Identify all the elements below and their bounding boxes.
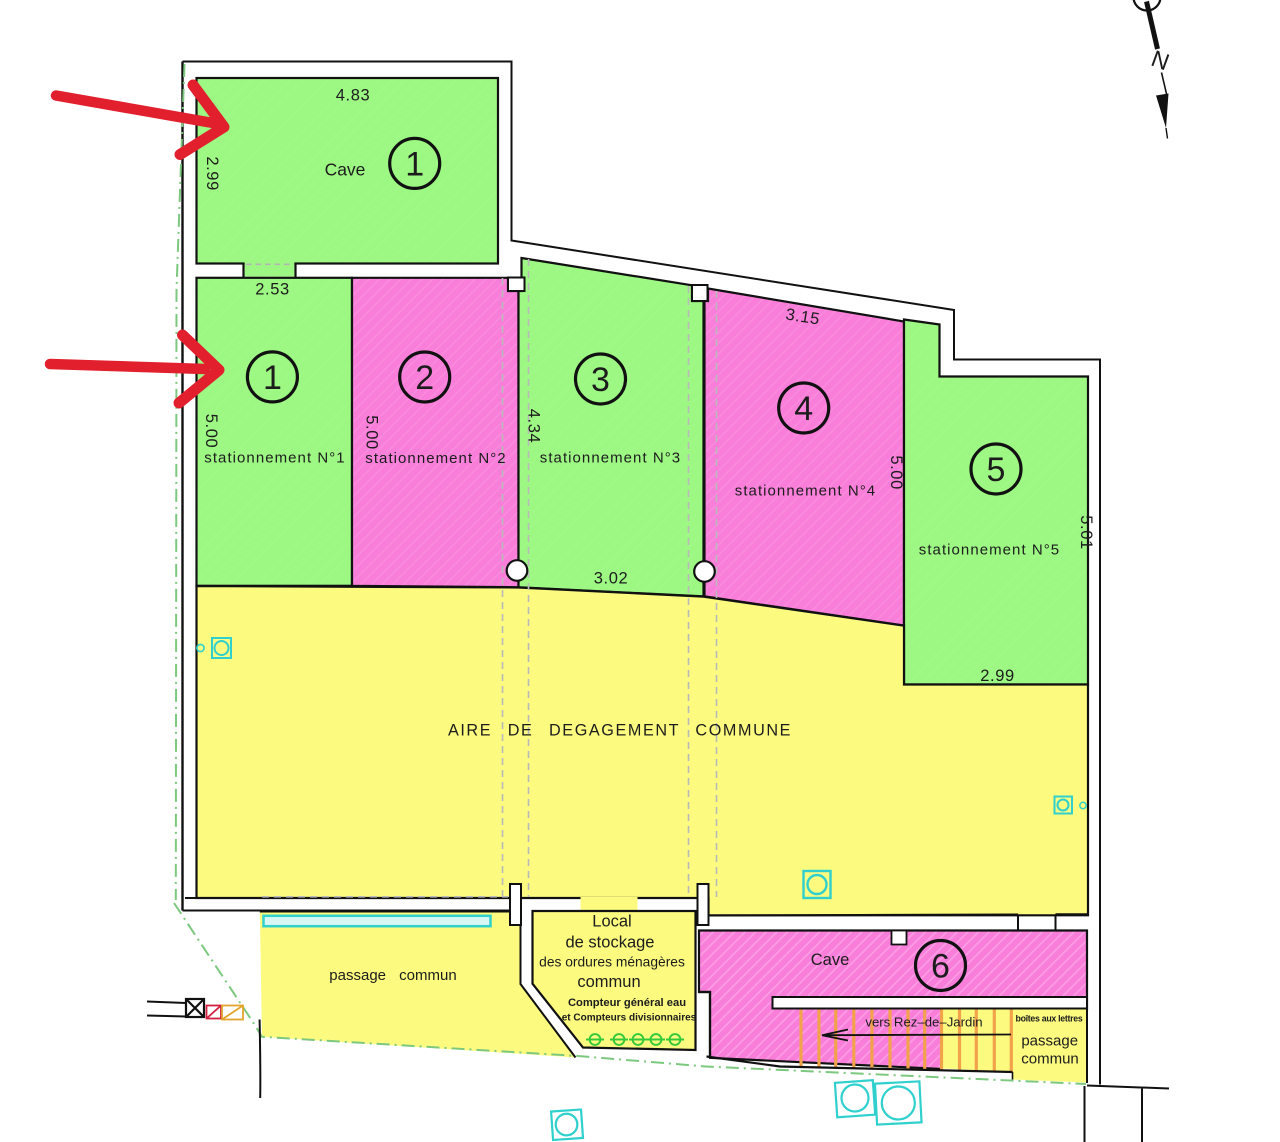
svg-text:Cave: Cave [811,951,850,969]
svg-text:6: 6 [931,948,950,986]
svg-text:4.34: 4.34 [525,409,543,444]
svg-text:stationnement N°5: stationnement N°5 [919,542,1060,559]
svg-text:5.00: 5.00 [363,415,381,450]
svg-text:4.83: 4.83 [336,87,371,105]
svg-text:stationnement N°4: stationnement N°4 [735,483,876,500]
svg-text:2.99: 2.99 [203,156,221,191]
svg-text:5.00: 5.00 [202,414,220,449]
svg-text:commun: commun [577,973,640,991]
svg-text:5.00: 5.00 [887,455,905,490]
svg-text:1: 1 [405,146,424,184]
svg-text:de stockage: de stockage [566,934,655,952]
svg-text:commun: commun [1021,1051,1079,1068]
svg-text:stationnement N°1: stationnement N°1 [204,450,345,467]
svg-text:Compteur général eau: Compteur général eau [568,997,686,1009]
svg-text:vers Rez–de–Jardin: vers Rez–de–Jardin [865,1015,982,1030]
svg-text:5.01: 5.01 [1077,515,1095,550]
svg-text:2.99: 2.99 [980,667,1015,685]
svg-text:3: 3 [591,361,610,399]
svg-text:passage: passage [1021,1033,1078,1050]
svg-text:3.02: 3.02 [594,570,629,588]
svg-text:des ordures ménagères: des ordures ménagères [539,955,685,970]
svg-text:4: 4 [794,390,813,428]
svg-text:boîtes aux lettres: boîtes aux lettres [1016,1014,1083,1024]
svg-text:Cave: Cave [325,160,366,180]
svg-text:passage commun: passage commun [329,967,456,984]
svg-text:AIRE DE DEGAGEMENT COMMUNE: AIRE DE DEGAGEMENT COMMUNE [448,722,792,740]
svg-text:Local: Local [592,913,631,931]
svg-text:1: 1 [263,359,282,397]
svg-text:5: 5 [987,451,1006,489]
svg-text:N: N [1148,45,1173,75]
svg-text:2: 2 [415,359,434,397]
svg-text:stationnement N°2: stationnement N°2 [365,450,506,467]
svg-text:2.53: 2.53 [255,281,290,299]
svg-text:stationnement N°3: stationnement N°3 [540,450,681,467]
svg-text:et Compteurs divisionnaires: et Compteurs divisionnaires [562,1013,697,1024]
